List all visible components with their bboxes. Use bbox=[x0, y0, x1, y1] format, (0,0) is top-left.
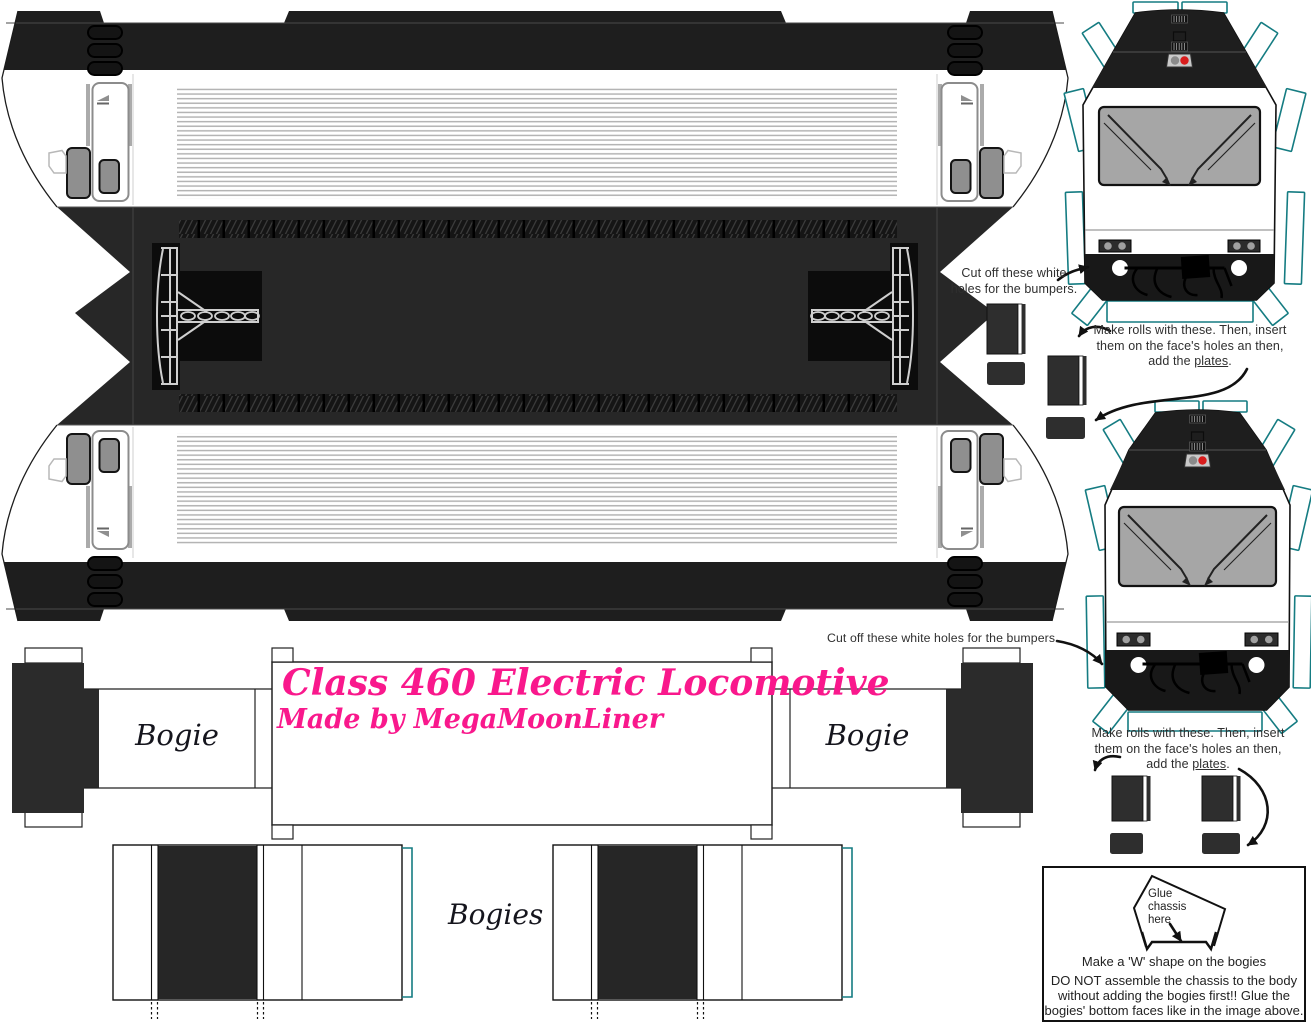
note-make-rolls-bottom: Make rolls with these. Then, insert them… bbox=[1082, 726, 1294, 773]
note-make-rolls-bottom-line2: them on the face's holes an then, bbox=[1094, 742, 1281, 756]
glue-tab bbox=[272, 825, 293, 839]
underbody-vent bbox=[88, 62, 122, 75]
nose-cutout bbox=[49, 151, 66, 174]
roof-vent-band-bottom bbox=[179, 394, 897, 412]
buffer-light-unit bbox=[1245, 633, 1278, 646]
note-cut-bumpers-top: Cut off these white holes for the bumper… bbox=[948, 266, 1080, 297]
roof-strip bbox=[57, 207, 1013, 425]
buffer-light-unit bbox=[1099, 240, 1131, 252]
assembly-instruction-box: Glue chassis here Make a 'W' shape on th… bbox=[1042, 866, 1306, 1022]
warning-line-3: bogies' bottom faces like in the image a… bbox=[1044, 1003, 1304, 1018]
glue-tab bbox=[1107, 301, 1253, 322]
bogie-template-1 bbox=[113, 845, 412, 1019]
w-shape-instruction: Make a 'W' shape on the bogies bbox=[1044, 954, 1304, 969]
roll-part bbox=[987, 304, 1018, 354]
note-make-rolls-top-period: . bbox=[1228, 354, 1232, 368]
cab-window-large bbox=[67, 148, 90, 198]
marker-light-icon bbox=[1189, 456, 1197, 464]
cab-window-small bbox=[100, 160, 120, 193]
papercraft-sheet: Cut off these white holes for the bumper… bbox=[0, 0, 1311, 1022]
glue-tab bbox=[751, 648, 772, 662]
glue-tab bbox=[1284, 192, 1304, 285]
face-skirt bbox=[1085, 254, 1274, 300]
buffer-light-unit bbox=[1228, 240, 1260, 252]
buffer-light-unit bbox=[1117, 633, 1150, 646]
glue-tab bbox=[402, 848, 412, 997]
bogie-wheel-section bbox=[114, 846, 163, 999]
bogie-frame-dark bbox=[598, 846, 697, 999]
front-face-template-2 bbox=[1085, 401, 1311, 734]
note-make-rolls-bottom-underline: plates bbox=[1192, 757, 1226, 771]
glue-tab bbox=[25, 812, 82, 827]
glue-chassis-here-label: Glue chassis here bbox=[1148, 888, 1186, 927]
windshield bbox=[1119, 507, 1276, 586]
glue-tab bbox=[963, 812, 1020, 827]
note-make-rolls-top-line1: Make rolls with these. Then, insert bbox=[1094, 323, 1287, 337]
glue-tab bbox=[751, 825, 772, 839]
warning-line-1: DO NOT assemble the chassis to the body bbox=[1044, 973, 1304, 988]
bogie-label-right: Bogie bbox=[790, 718, 945, 752]
bogie-frame-dark bbox=[158, 846, 257, 999]
plate-part bbox=[1110, 833, 1143, 854]
marker-light-icon bbox=[1171, 56, 1179, 64]
model-credit: Made by MegaMoonLiner bbox=[277, 704, 663, 735]
bogie-template-2 bbox=[553, 845, 852, 1019]
glue-tab bbox=[1272, 88, 1306, 151]
note-make-rolls-top-line3: add the bbox=[1148, 354, 1194, 368]
locomotive-body-template bbox=[2, 11, 1068, 621]
model-title: Class 460 Electric Locomotive bbox=[282, 662, 890, 704]
note-make-rolls-top-underline: plates bbox=[1194, 354, 1228, 368]
warning-line-2: without adding the bogies first!! Glue t… bbox=[1044, 988, 1304, 1003]
roof-vent-band-top bbox=[179, 220, 897, 238]
glue-tab bbox=[1086, 596, 1105, 688]
glue-tab bbox=[25, 648, 82, 663]
glue-tab bbox=[1293, 596, 1311, 688]
roll-part bbox=[1202, 776, 1233, 821]
bogie-wheel-section bbox=[253, 846, 302, 999]
plate-part bbox=[1202, 833, 1240, 854]
bogie-label-left: Bogie bbox=[99, 718, 255, 752]
bogie-wheel-section bbox=[693, 846, 742, 999]
windshield bbox=[1099, 107, 1260, 185]
arrow-icon bbox=[1239, 769, 1268, 845]
body-side-bottom bbox=[4, 433, 1066, 621]
note-make-rolls-bottom-line3: add the bbox=[1146, 757, 1192, 771]
chassis-end-cap-left bbox=[12, 663, 99, 813]
plate-part bbox=[987, 362, 1025, 385]
engine-grille bbox=[177, 86, 897, 199]
glue-tab bbox=[842, 848, 852, 997]
underbody-vent bbox=[88, 44, 122, 57]
bumper-hole bbox=[1249, 657, 1265, 673]
red-light-icon bbox=[1198, 456, 1206, 464]
bumper-hole bbox=[1231, 260, 1247, 276]
bogies-label: Bogies bbox=[448, 898, 540, 931]
red-light-icon bbox=[1180, 56, 1188, 64]
note-make-rolls-bottom-period: . bbox=[1226, 757, 1230, 771]
body-side-top bbox=[4, 11, 1066, 199]
note-make-rolls-top: Make rolls with these. Then, insert them… bbox=[1084, 323, 1296, 370]
glue-tab bbox=[963, 648, 1020, 663]
note-make-rolls-bottom-line1: Make rolls with these. Then, insert bbox=[1092, 726, 1285, 740]
underbody-vent bbox=[88, 26, 122, 39]
note-make-rolls-top-line2: them on the face's holes an then, bbox=[1096, 339, 1283, 353]
roll-part bbox=[1112, 776, 1143, 821]
note-cut-bumpers-bottom: Cut off these white holes for the bumper… bbox=[827, 631, 1059, 647]
bogie-wheel-section bbox=[554, 846, 603, 999]
chassis-end-cap-right bbox=[946, 663, 1033, 813]
plate-part bbox=[1046, 417, 1085, 439]
glue-tab bbox=[272, 648, 293, 662]
roll-part bbox=[1048, 356, 1079, 405]
front-face-template-1 bbox=[1064, 2, 1306, 326]
